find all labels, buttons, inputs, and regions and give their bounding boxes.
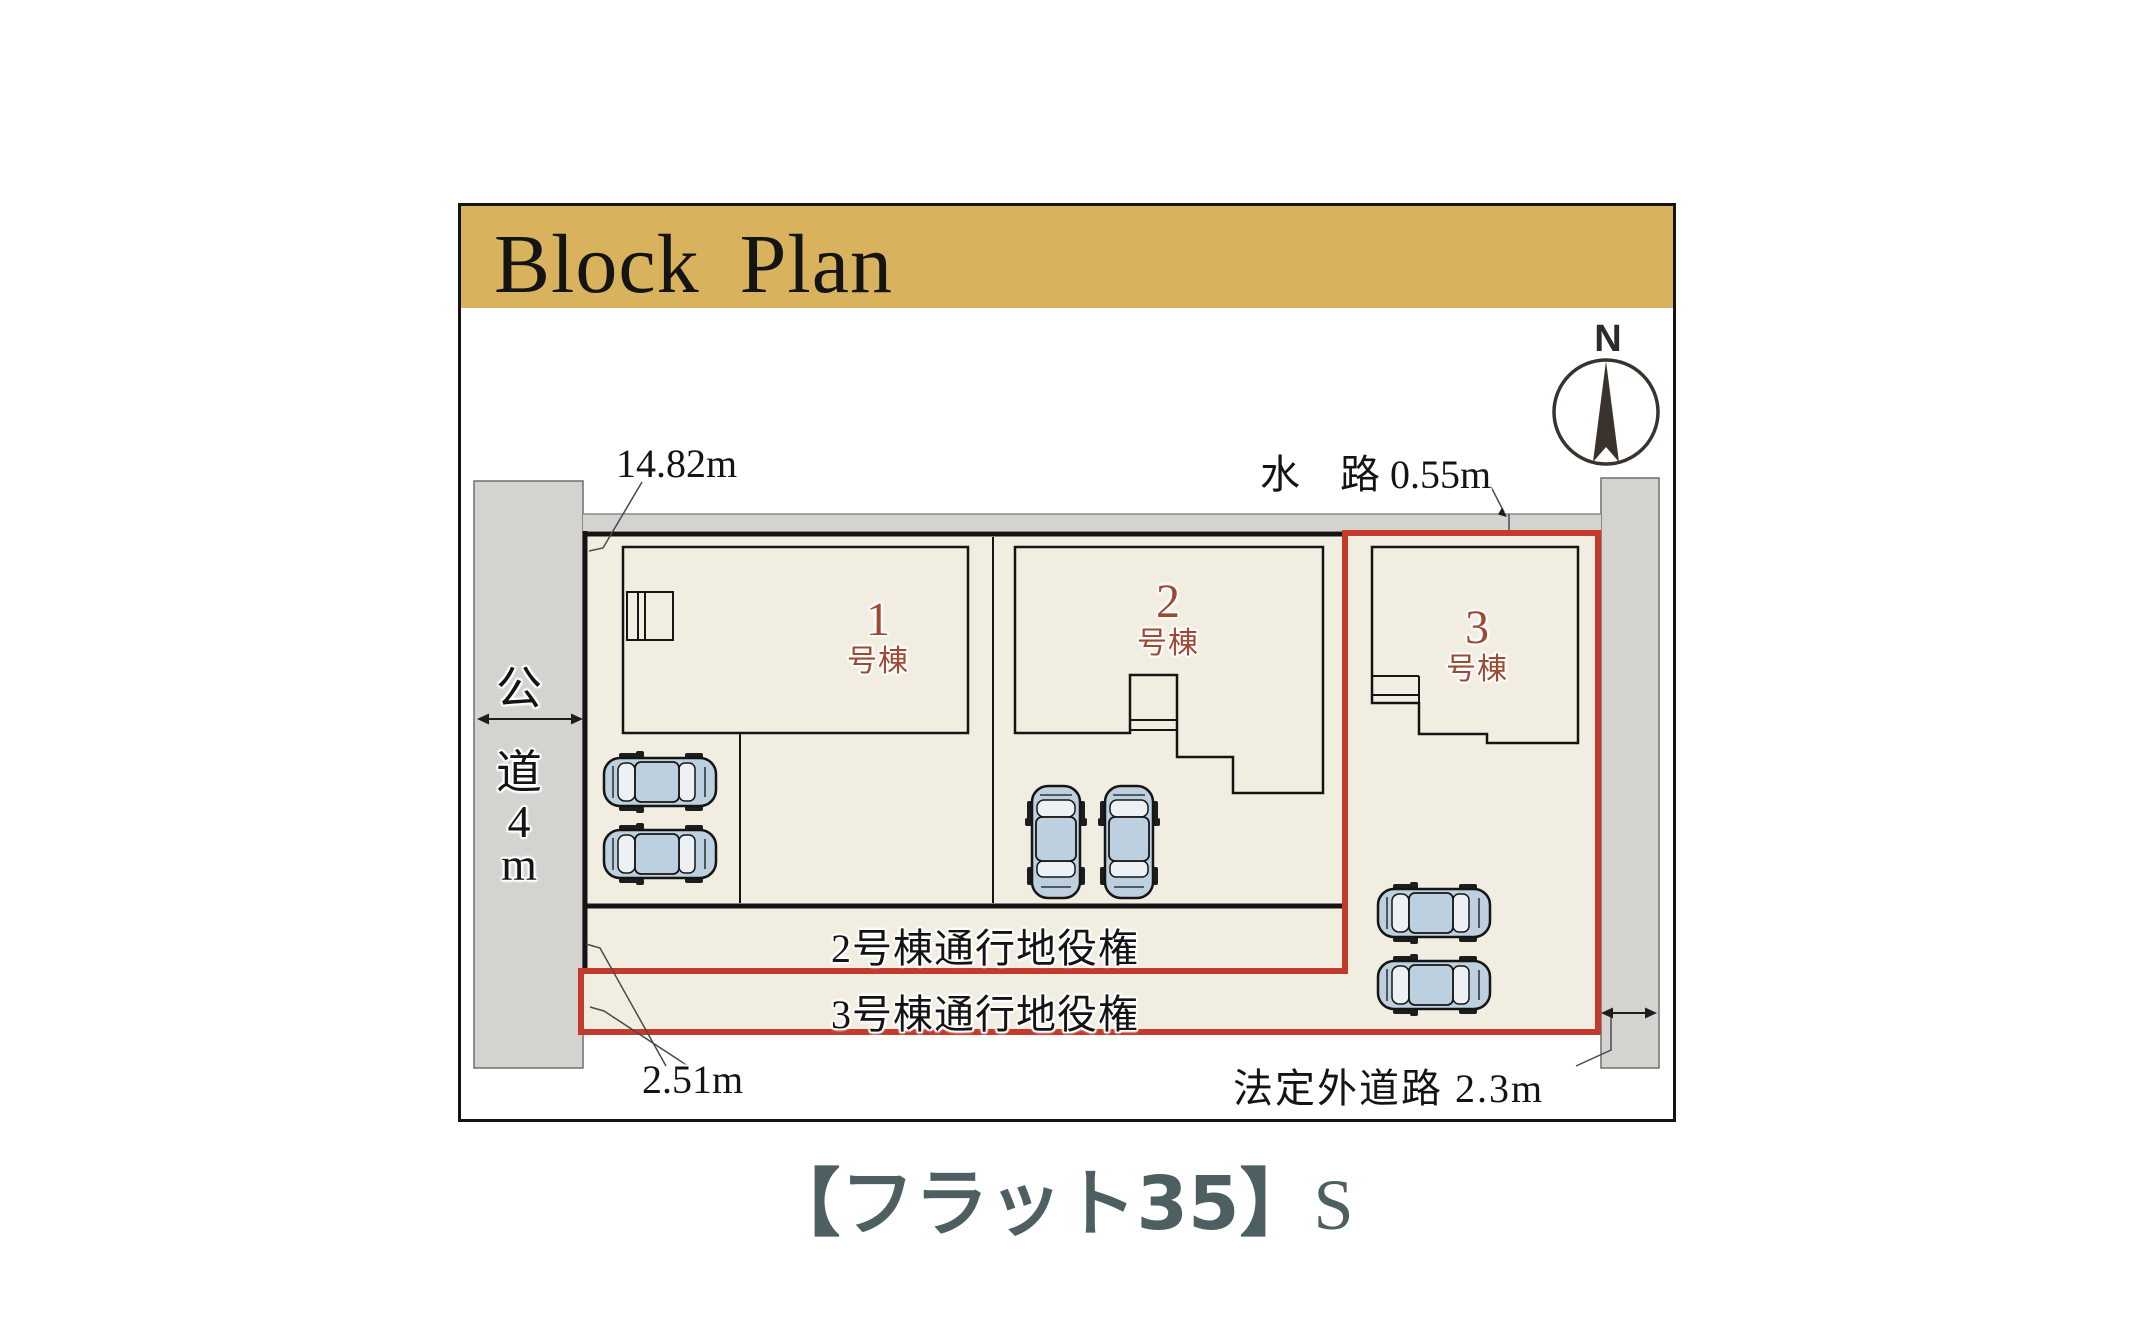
north-label: N bbox=[1586, 318, 1630, 361]
building-3-label: 3 号棟 bbox=[1402, 604, 1552, 685]
building-2-suffix: 号棟 bbox=[1093, 629, 1243, 659]
flat35-caption-main: 【フラット35】 bbox=[766, 1161, 1313, 1247]
road-left-char-4: m bbox=[490, 838, 548, 891]
dim-top-width: 14.82m bbox=[616, 440, 737, 487]
dim-bottom-left: 2.51m bbox=[642, 1056, 743, 1103]
plan-title: Block Plan bbox=[494, 216, 893, 313]
building-3-suffix: 号棟 bbox=[1402, 655, 1552, 685]
building-1-number: 1 bbox=[803, 596, 953, 644]
building-2-label: 2 号棟 bbox=[1093, 578, 1243, 659]
building-3-number: 3 bbox=[1402, 604, 1552, 652]
bottom-road-label: 法定外道路 2.3m bbox=[1233, 1056, 1544, 1114]
easement-label-lot3: 3号棟通行地役権 bbox=[775, 982, 1195, 1040]
building-1-suffix: 号棟 bbox=[803, 647, 953, 677]
road-left-char-2: 道 bbox=[490, 736, 548, 802]
flat35-caption: 【フラット35】S bbox=[760, 1144, 1360, 1251]
easement-label-lot2: 2号棟通行地役権 bbox=[775, 916, 1195, 974]
flat35-caption-suffix: S bbox=[1313, 1165, 1353, 1245]
road-left-char-1: 公 bbox=[490, 652, 548, 718]
building-2-number: 2 bbox=[1093, 578, 1243, 626]
page: { "colors": { "gold": "#d8b25c", "red": … bbox=[0, 0, 2134, 1335]
building-1-label: 1 号棟 bbox=[803, 596, 953, 677]
waterway-label: 水 路 0.55m bbox=[1260, 442, 1491, 500]
